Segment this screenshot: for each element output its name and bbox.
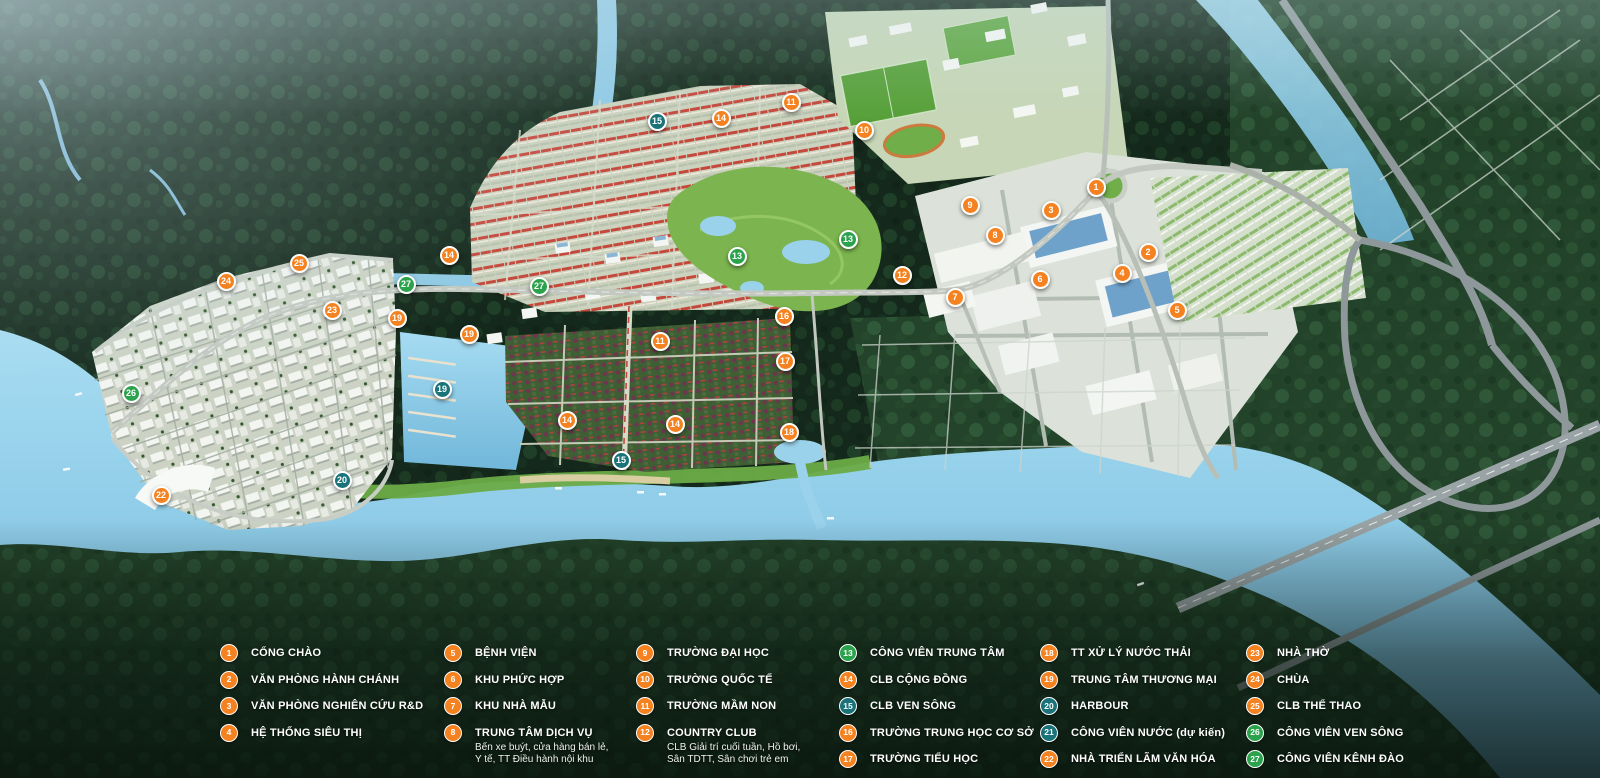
map-marker: 14 [558,411,577,430]
map-marker: 20 [333,471,352,490]
map-marker: 10 [855,121,874,140]
map-marker: 18 [780,423,799,442]
map-marker: 11 [782,93,801,112]
map-markers-layer: 1234567891011111213131414141415151617181… [0,0,1600,778]
map-marker: 9 [961,196,980,215]
map-marker: 3 [1042,201,1061,220]
map-marker: 26 [122,384,141,403]
map-marker: 2 [1139,243,1158,262]
map-marker: 7 [946,288,965,307]
map-marker: 11 [651,332,670,351]
map-marker: 14 [712,109,731,128]
map-marker: 1 [1087,178,1106,197]
map-marker: 27 [530,277,549,296]
map-marker: 15 [648,112,667,131]
map-marker: 6 [1031,270,1050,289]
map-marker: 12 [893,266,912,285]
map-marker: 24 [217,272,236,291]
map-marker: 15 [612,451,631,470]
map-marker: 25 [290,254,309,273]
map-marker: 23 [323,301,342,320]
map-marker: 13 [839,230,858,249]
masterplan-screenshot: 1234567891011111213131414141415151617181… [0,0,1600,778]
map-marker: 22 [152,486,171,505]
map-marker: 19 [460,325,479,344]
map-marker: 17 [776,352,795,371]
map-marker: 5 [1168,301,1187,320]
map-marker: 14 [440,246,459,265]
map-marker: 27 [397,275,416,294]
map-marker: 14 [666,415,685,434]
map-marker: 4 [1113,264,1132,283]
map-marker: 19 [388,309,407,328]
map-marker: 16 [775,307,794,326]
map-marker: 13 [728,247,747,266]
map-marker: 8 [986,226,1005,245]
map-marker: 19 [433,380,452,399]
